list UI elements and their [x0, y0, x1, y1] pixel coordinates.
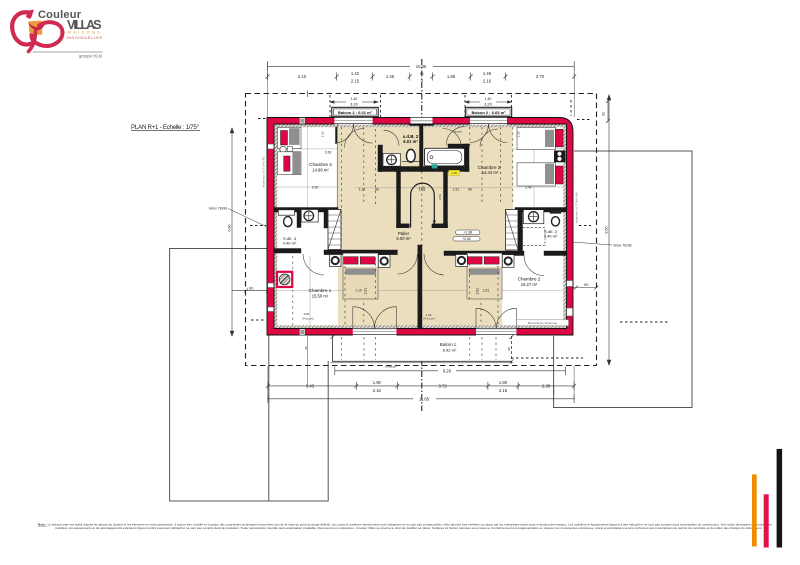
svg-text:6.01 m²: 6.01 m²	[403, 139, 418, 144]
svg-text:Velux 78x98: Velux 78x98	[613, 244, 632, 248]
svg-text:15.27 m²: 15.27 m²	[521, 282, 538, 287]
svg-text:+2.60: +2.60	[462, 237, 471, 241]
svg-text:2.51: 2.51	[438, 194, 442, 200]
svg-text:5.00 m²: 5.00 m²	[396, 236, 411, 241]
svg-text:6.92 m²: 6.92 m²	[443, 347, 457, 352]
svg-text:1.40: 1.40	[485, 97, 492, 101]
svg-text:Chambre 4: Chambre 4	[309, 162, 332, 167]
svg-text:2.92: 2.92	[312, 185, 319, 189]
svg-text:Balcon 2 : 6.65 m²: Balcon 2 : 6.65 m²	[471, 110, 506, 115]
svg-text:1.51: 1.51	[483, 289, 490, 293]
svg-text:14.99 m²: 14.99 m²	[312, 167, 329, 172]
svg-text:1.10: 1.10	[517, 131, 521, 137]
svg-text:1.46: 1.46	[386, 74, 395, 79]
svg-text:92: 92	[602, 112, 606, 116]
svg-text:1.90: 1.90	[373, 380, 382, 385]
svg-text:1.15: 1.15	[419, 188, 426, 192]
svg-text:15.50 m²: 15.50 m²	[312, 294, 329, 299]
svg-text:90: 90	[420, 72, 424, 76]
svg-text:1.49: 1.49	[483, 71, 492, 76]
svg-text:Chambre 1: Chambre 1	[309, 288, 332, 293]
svg-text:Arase mur +5.77 (h=1.40): Arase mur +5.77 (h=1.40)	[262, 157, 266, 188]
svg-text:3.43: 3.43	[306, 384, 315, 389]
svg-text:2.81: 2.81	[363, 288, 367, 295]
svg-text:3.20: 3.20	[350, 102, 359, 107]
svg-text:96: 96	[375, 188, 379, 192]
svg-text:3.39: 3.39	[325, 150, 332, 154]
svg-text:2.42: 2.42	[525, 185, 532, 189]
svg-text:Menuiserie conservée: Menuiserie conservée	[528, 321, 558, 325]
svg-text:2.81: 2.81	[476, 288, 480, 295]
svg-text:Arase mur +5.77 (h=1.40): Arase mur +5.77 (h=1.40)	[575, 193, 579, 224]
svg-text:1.00: 1.00	[451, 171, 457, 175]
svg-text:10.05: 10.05	[416, 64, 427, 69]
svg-text:4.40 m²: 4.40 m²	[544, 233, 558, 238]
svg-text:2.15: 2.15	[373, 388, 382, 393]
svg-text:mobiliers, les équipements et: mobiliers, les équipements et les aménag…	[55, 526, 762, 530]
svg-text:1.10: 1.10	[355, 289, 362, 293]
svg-text:2.15: 2.15	[499, 388, 508, 393]
svg-text:-5: -5	[420, 79, 423, 83]
svg-text:90: 90	[249, 285, 254, 290]
svg-text:2.10: 2.10	[298, 74, 307, 79]
svg-text:1.51: 1.51	[453, 188, 460, 192]
svg-text:14.44 m²: 14.44 m²	[482, 170, 499, 175]
svg-text:INDIVIDUELLES: INDIVIDUELLES	[67, 36, 103, 40]
svg-text:1.90: 1.90	[499, 380, 508, 385]
svg-text:Placard: Placard	[452, 129, 462, 133]
svg-text:8.50: 8.50	[604, 227, 608, 234]
svg-text:1.10: 1.10	[359, 188, 366, 192]
svg-text:2.16: 2.16	[483, 78, 492, 83]
svg-text:96: 96	[468, 188, 472, 192]
svg-text:90: 90	[304, 346, 308, 350]
svg-text:1.10: 1.10	[321, 131, 325, 137]
svg-text:2.15: 2.15	[351, 78, 360, 83]
svg-text:groupe HLM: groupe HLM	[79, 54, 103, 59]
svg-text:1.42: 1.42	[351, 71, 360, 76]
svg-text:1.40: 1.40	[351, 97, 358, 101]
svg-text:90: 90	[584, 282, 589, 287]
svg-text:9.20: 9.20	[443, 369, 452, 374]
svg-text:Velux 78x98: Velux 78x98	[209, 207, 228, 211]
svg-text:2.70: 2.70	[536, 74, 545, 79]
svg-text:s.balcon: s.balcon	[385, 364, 397, 368]
svg-text:Chambre 3: Chambre 3	[478, 165, 501, 170]
svg-text:3.72: 3.72	[439, 384, 448, 389]
svg-text:M A I S O N S: M A I S O N S	[68, 31, 100, 35]
svg-text:PLAN R+1 - Echelle : 1/75°: PLAN R+1 - Echelle : 1/75°	[131, 124, 200, 131]
svg-text:2.30: 2.30	[542, 384, 551, 389]
svg-text:Balcon 1: Balcon 1	[440, 342, 457, 347]
svg-text:(Parquet): (Parquet)	[423, 317, 435, 321]
svg-text:6.80: 6.80	[228, 225, 232, 232]
svg-text:4.40 m²: 4.40 m²	[283, 241, 297, 246]
svg-text:Balcon 2 : 6.01 m²: Balcon 2 : 6.01 m²	[338, 110, 373, 115]
svg-text:Chambre 2: Chambre 2	[518, 277, 541, 282]
svg-text:(Parquet): (Parquet)	[302, 316, 314, 320]
svg-text:3.20: 3.20	[484, 102, 493, 107]
svg-text:2.87: 2.87	[304, 312, 310, 316]
svg-text:1.88: 1.88	[447, 74, 456, 79]
svg-text:+1.38: +1.38	[463, 231, 472, 235]
svg-text:90: 90	[507, 347, 511, 351]
svg-text:11.65: 11.65	[419, 396, 430, 401]
